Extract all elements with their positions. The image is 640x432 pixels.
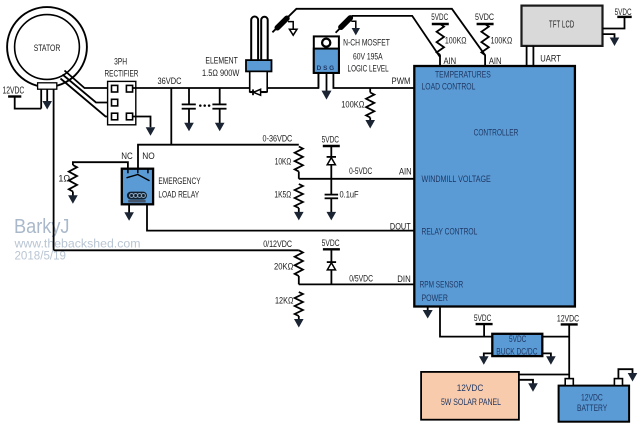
svg-text:100KΩ: 100KΩ: [491, 36, 513, 47]
svg-text:3PH: 3PH: [114, 56, 127, 67]
svg-text:5VDC: 5VDC: [431, 12, 448, 23]
svg-text:RELAY CONTROL: RELAY CONTROL: [422, 226, 478, 236]
svg-text:5VDC: 5VDC: [509, 334, 527, 344]
svg-text:LOGIC LEVEL: LOGIC LEVEL: [348, 64, 389, 75]
svg-text:TFT LCD: TFT LCD: [549, 20, 574, 31]
svg-text:BarkyJ: BarkyJ: [14, 215, 70, 238]
svg-text:0-36VDC: 0-36VDC: [263, 134, 293, 145]
svg-text:5VDC: 5VDC: [615, 7, 632, 18]
svg-text:UART: UART: [540, 53, 561, 64]
svg-text:5W SOLAR PANEL: 5W SOLAR PANEL: [441, 397, 501, 407]
svg-text:N-CH MOSFET: N-CH MOSFET: [343, 38, 390, 49]
svg-text:100KΩ: 100KΩ: [445, 36, 467, 47]
svg-text:12KΩ: 12KΩ: [275, 296, 293, 307]
svg-text:STATOR: STATOR: [34, 43, 61, 54]
svg-text:RECTIFIER: RECTIFIER: [105, 69, 139, 79]
svg-text:LOAD CONTROL: LOAD CONTROL: [422, 82, 476, 92]
svg-text:1Ω: 1Ω: [58, 173, 70, 184]
svg-text:BUCK DC/DC: BUCK DC/DC: [496, 346, 538, 356]
svg-text:12VDC: 12VDC: [581, 393, 603, 403]
svg-text:5VDC: 5VDC: [322, 135, 339, 146]
svg-text:RPM SENSOR: RPM SENSOR: [420, 280, 464, 290]
svg-text:0/12VDC: 0/12VDC: [263, 239, 292, 250]
svg-text:5VDC: 5VDC: [475, 12, 494, 23]
svg-text:DOUT: DOUT: [390, 222, 411, 233]
svg-text:TEMPERATURES: TEMPERATURES: [435, 69, 491, 79]
svg-text:AIN: AIN: [443, 56, 456, 66]
svg-text:NO: NO: [142, 151, 155, 161]
svg-text:5VDC: 5VDC: [474, 313, 492, 324]
svg-text:WINDMILL VOLTAGE: WINDMILL VOLTAGE: [422, 174, 491, 184]
svg-text:5VDC: 5VDC: [322, 238, 340, 249]
svg-text:NC: NC: [121, 151, 133, 161]
svg-text:AIN: AIN: [399, 167, 412, 177]
svg-text:60V 195A: 60V 195A: [353, 52, 383, 63]
svg-text:10KΩ: 10KΩ: [275, 157, 292, 168]
svg-text:AIN: AIN: [489, 56, 502, 66]
svg-text:1.5Ω 900W: 1.5Ω 900W: [202, 68, 239, 79]
svg-text:0.1uF: 0.1uF: [340, 190, 359, 201]
svg-text:EMERGENCY: EMERGENCY: [158, 176, 201, 187]
svg-text:20KΩ: 20KΩ: [274, 261, 293, 272]
svg-text:DIN: DIN: [397, 274, 410, 284]
svg-text:12VDC: 12VDC: [3, 86, 25, 97]
svg-text:100KΩ: 100KΩ: [341, 100, 364, 111]
svg-text:POWER: POWER: [422, 293, 449, 303]
svg-text:LOAD RELAY: LOAD RELAY: [158, 190, 199, 201]
svg-text:0-5VDC: 0-5VDC: [349, 166, 372, 177]
svg-text:12VDC: 12VDC: [557, 314, 579, 325]
svg-text:CONTROLLER: CONTROLLER: [474, 128, 519, 138]
svg-text:1K5Ω: 1K5Ω: [274, 190, 291, 201]
svg-text:12VDC: 12VDC: [457, 383, 484, 393]
svg-text:36VDC: 36VDC: [158, 76, 182, 87]
svg-text:0/5VDC: 0/5VDC: [349, 274, 373, 285]
svg-text:PWM: PWM: [392, 76, 411, 87]
svg-text:ELEMENT: ELEMENT: [205, 56, 238, 67]
svg-text:BATTERY: BATTERY: [577, 403, 607, 413]
svg-text:D S G: D S G: [317, 65, 335, 72]
